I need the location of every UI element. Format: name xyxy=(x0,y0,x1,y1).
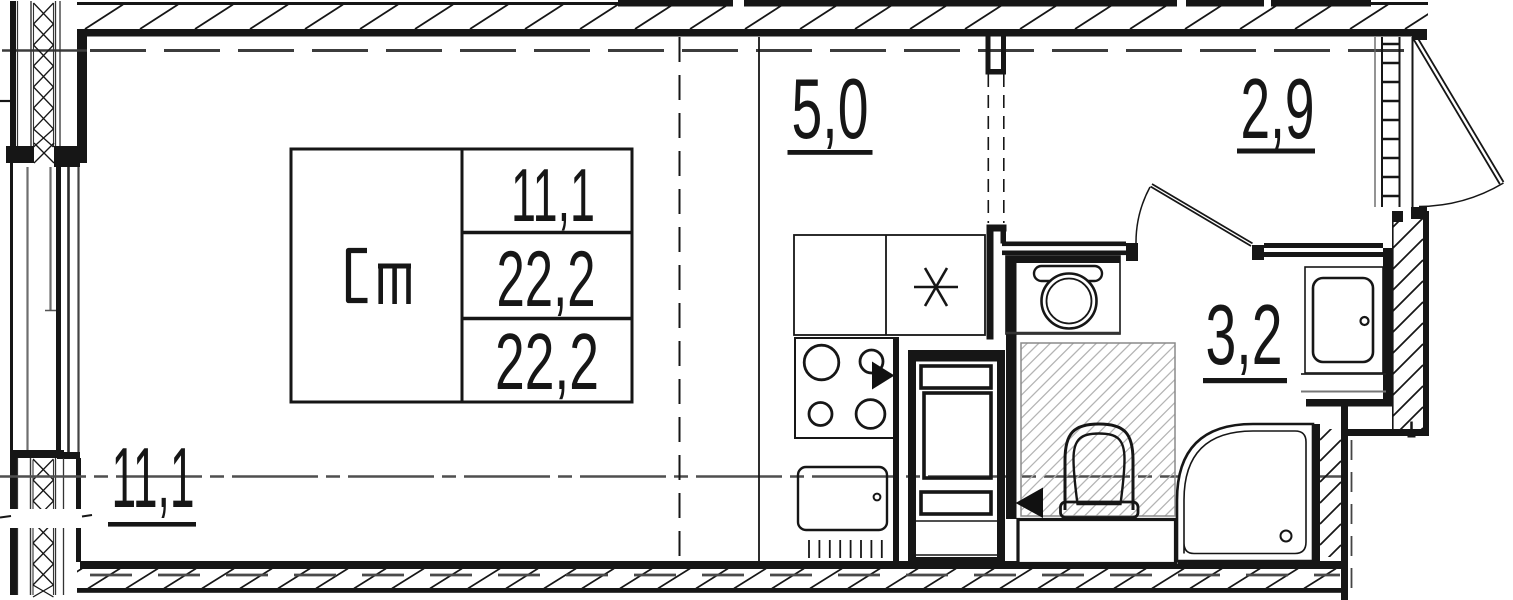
svg-text:11,1: 11,1 xyxy=(112,431,195,526)
svg-text:11,1: 11,1 xyxy=(511,153,595,237)
svg-text:2,9: 2,9 xyxy=(1241,62,1315,157)
svg-text:22,2: 22,2 xyxy=(495,317,599,406)
svg-text:5,0: 5,0 xyxy=(792,62,869,157)
svg-text:3,2: 3,2 xyxy=(1206,288,1283,383)
svg-text:22,2: 22,2 xyxy=(497,234,596,323)
